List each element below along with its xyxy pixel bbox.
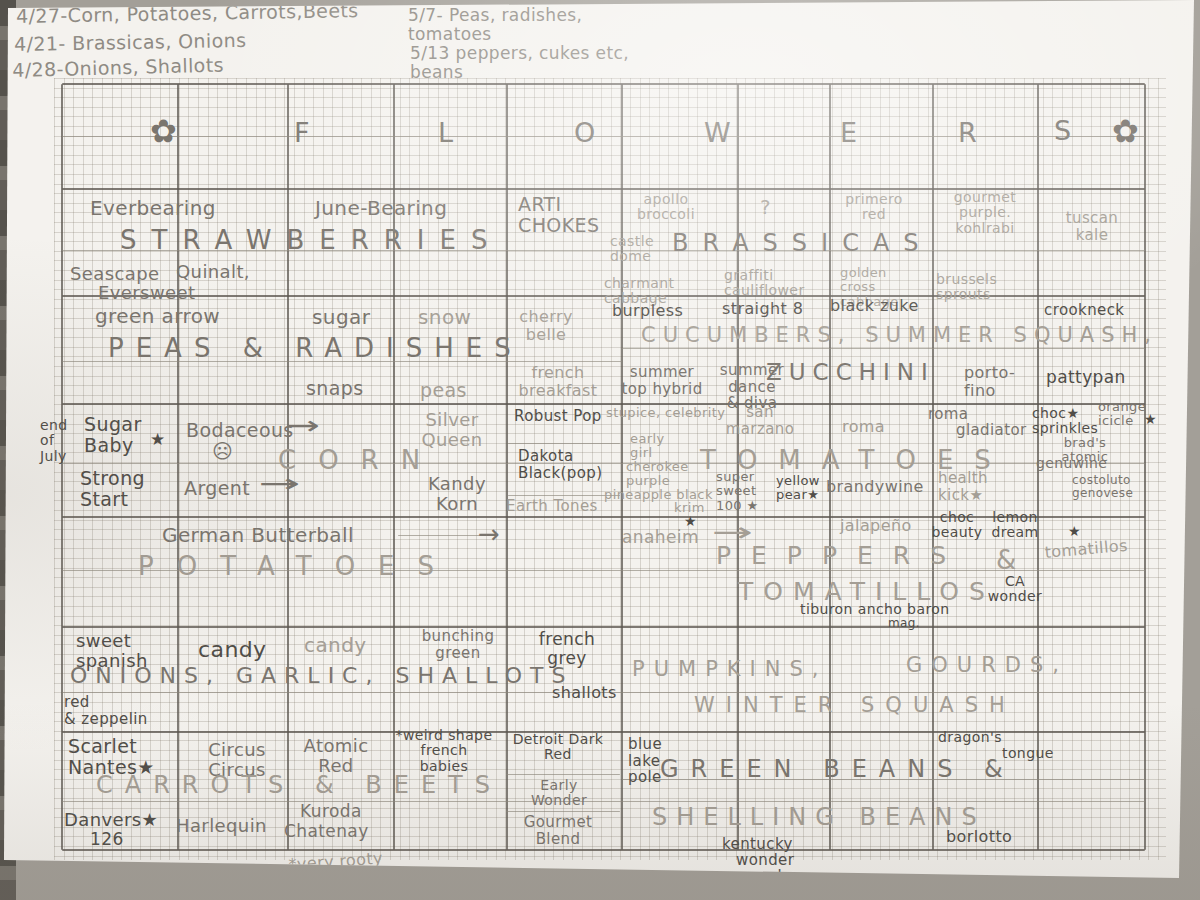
flowers-letter-o: O <box>574 118 596 148</box>
note-4-21: 4/21- Brassicas, Onions <box>14 30 247 55</box>
peas-snaps: snaps <box>306 378 364 399</box>
corn-kandy-korn: Kandy Korn <box>424 474 490 514</box>
tomatoes-stupice-celebrity: stupice, celebrity <box>606 406 725 420</box>
cell-divider-line <box>506 774 620 775</box>
table-row-line <box>62 626 1145 628</box>
radishes-cherry-belle: cherry belle <box>514 308 578 343</box>
tomatoes-genuwine: genuwine <box>1036 456 1107 471</box>
cucumbers-straight-8: straight 8 <box>722 300 803 318</box>
brassicas-brussels-sprouts: brussels sprouts <box>936 272 997 303</box>
beans-borlotto: borlotto <box>946 828 1012 846</box>
beets-detroit-dark-red: Detroit Dark Red <box>502 732 614 763</box>
corn-earth-tones: Earth Tones <box>506 498 598 515</box>
margin-end-of-july: end of July <box>40 418 68 464</box>
brassicas-question-mark: ? <box>760 196 771 218</box>
peppers-ca-wonder: CA wonder <box>984 574 1046 605</box>
tomatoes-choc-sprinkles: choc★ sprinkles <box>1032 406 1098 437</box>
strawberries-quinalt: Quinalt, <box>176 262 250 282</box>
flowers-letter-s: S <box>1054 116 1072 146</box>
tomatoes-costoluto: costoluto genovese <box>1072 474 1133 500</box>
onions-bunching-green: bunching green <box>410 628 506 661</box>
corn-bodaceous-arrow: → <box>286 412 320 440</box>
table-row-line <box>62 83 1145 85</box>
corn-dakota-black: Dakota Black(pop) <box>518 448 603 481</box>
peppers-anaheim: anaheim <box>622 528 699 547</box>
onions-title: ONIONS, GARLIC, SHALLOTS <box>70 664 573 688</box>
tomatoes-brandywine: brandywine <box>826 478 924 496</box>
peas-radishes-title: PEAS & RADISHES <box>108 334 523 363</box>
squash-pattypan: pattypan <box>1046 368 1126 387</box>
peas-green-arrow: green arrow <box>95 305 220 327</box>
winter-squash-title: WINTER SQUASH <box>694 694 1016 717</box>
shallots-french-grey: french grey <box>524 630 610 667</box>
tomatoes-yellow-pear: yellow pear★ <box>776 474 820 503</box>
flowers-letter-r: R <box>958 118 977 148</box>
corn-argent-arrow: → <box>258 470 301 498</box>
peppers-ampersand: & <box>996 546 1017 575</box>
flower-doodle-right: ✿ <box>1112 114 1139 149</box>
strawberries-june-bearing: June-Bearing <box>315 197 447 219</box>
carrots-atomic-red: Atomic Red <box>296 736 376 776</box>
carrots-french-babies: *weird shape french babies <box>386 728 502 774</box>
onions-candy-2: candy <box>304 634 366 656</box>
tomatoes-early-girl: early girl <box>630 432 665 461</box>
note-5-13: 5/13 peppers, cukes etc, beans <box>410 44 629 81</box>
squash-crookneck: crookneck <box>1044 302 1124 319</box>
brassicas-apollo-broccoli: apollo broccoli <box>630 192 702 223</box>
peas-peas: peas <box>420 380 467 401</box>
peas-sugar: sugar <box>312 306 370 328</box>
note-4-27: 4/27-Corn, Potatoes, Carrots,Beets <box>16 0 359 27</box>
tomatoes-health-kick: health kick★ <box>938 470 988 503</box>
note-5-7: 5/7- Peas, radishes, tomatoes <box>408 6 582 43</box>
corn-sad-face-doodle: ☹ <box>212 440 233 462</box>
shallots-small: shallots <box>552 684 617 702</box>
corn-robust-pop: Robust Pop <box>514 408 602 425</box>
onions-candy: candy <box>198 638 267 662</box>
carrots-chatenay: Chatenay <box>284 822 369 841</box>
flowers-letter-w: W <box>704 118 731 148</box>
table-column-line <box>1144 84 1146 850</box>
strawberries-title: STRAWBERRIES <box>120 226 502 255</box>
carrots-kuroda: Kuroda <box>300 802 362 821</box>
beets-early-wonder: Early Wonder <box>512 778 606 809</box>
section-mid-line <box>622 348 1145 349</box>
gourds-title: GOURDS, <box>906 654 1068 677</box>
peppers-choc-beauty: choc beauty <box>930 510 984 541</box>
peppers-mag: mag. <box>888 617 920 630</box>
flowers-letter-e: E <box>840 118 857 148</box>
radishes-french-breakfast: french breakfast <box>508 364 608 399</box>
carrots-very-rooty: *very rooty <box>288 849 383 873</box>
beans-dragons: dragon's <box>938 730 1002 745</box>
brassicas-castle-dome: castle dome <box>610 234 654 265</box>
brassicas-graffiti-cauliflower: graffiti cauliflower <box>724 268 805 299</box>
beets-gourmet-blend: Gourmet Blend <box>508 814 608 847</box>
tomatoes-orange-icicle: orange icicle <box>1098 400 1146 429</box>
onions-red-zeppelin: red & zeppelin <box>64 694 148 727</box>
tomatoes-gladiator: gladiator <box>956 422 1027 439</box>
brassicas-primero-red: primero red <box>838 192 910 223</box>
artichokes-label: ARTI CHOKES <box>518 194 599 236</box>
corn-silver-queen: Silver Queen <box>416 410 488 450</box>
corn-title: CORN <box>278 446 442 475</box>
strawberries-seascape: Seascape <box>70 264 160 284</box>
cucumbers-squash-title: CUCUMBERS, SUMMER SQUASH, <box>641 324 1158 347</box>
peppers-tiburon: tiburon ancho baron <box>800 602 949 617</box>
potatoes-german-butterball: German Butterball <box>162 524 354 546</box>
flowers-letter-l: L <box>438 118 453 148</box>
peppers-title: PEPPERS <box>716 542 966 570</box>
cell-divider-line <box>506 811 620 812</box>
carrots-danvers-126: 126 <box>90 830 124 849</box>
note-4-28: 4/28-Onions, Shallots <box>12 54 224 80</box>
peas-snow: snow <box>418 306 471 328</box>
peppers-jalapeno: jalapeño <box>840 517 912 535</box>
beans-pole: pole <box>758 868 792 885</box>
paper: 4/27-Corn, Potatoes, Carrots,Beets4/21- … <box>0 0 1200 900</box>
carrots-danvers: Danvers★ <box>64 810 158 830</box>
tomatoes-super-sweet-100: super sweet 100 ★ <box>716 470 759 513</box>
photo-background: 4/27-Corn, Potatoes, Carrots,Beets4/21- … <box>0 0 1200 900</box>
flower-doodle-left: ✿ <box>150 114 177 149</box>
cell-divider-line <box>508 443 620 444</box>
brassicas-title: BRASSICAS <box>672 230 933 256</box>
corn-sugar-baby-star: ★ <box>150 430 166 449</box>
peppers-lemon-dream: lemon dream <box>988 510 1042 541</box>
tomatillos-star: ★ <box>1068 524 1081 539</box>
tomatoes-cherokee-purple: cherokee purple <box>626 460 689 489</box>
tomatoes-roma: roma <box>842 418 885 436</box>
brassicas-tuscan-kale: tuscan kale <box>1056 210 1128 243</box>
flowers-letter-f: F <box>294 118 310 148</box>
table-row-line <box>62 403 1145 405</box>
table-row-line <box>62 849 1145 851</box>
zucchini-title: ZUCCHINI <box>766 360 935 385</box>
corn-argent: Argent <box>184 478 250 499</box>
strawberries-eversweet: Eversweet <box>98 283 195 303</box>
beans-tongue: tongue <box>1002 746 1054 761</box>
brassicas-gourmet-kohlrabi: gourmet purple. kohlrabi <box>944 190 1026 236</box>
potatoes-arrow: → <box>478 520 500 549</box>
green-beans-title: GREEN BEANS & <box>660 756 1015 782</box>
corn-sugar-baby: Sugar Baby <box>84 414 142 456</box>
corn-strong-start: Strong Start <box>80 468 145 510</box>
potatoes-title: POTATOES <box>138 552 457 581</box>
cucumbers-summer-top: summer top hybrid <box>616 364 708 397</box>
corn-bodaceous: Bodaceous <box>186 420 294 441</box>
section-mid-line <box>62 136 1145 137</box>
tomatoes-orange-icicle-star: ★ <box>1144 412 1157 427</box>
table-column-line <box>61 84 63 850</box>
carrots-beets-title: CARROTS & BEETS <box>96 772 502 798</box>
squash-black-zuke: black zuke <box>830 297 919 315</box>
pumpkins-title: PUMPKINS, <box>632 658 828 681</box>
shelling-beans-title: SHELLING BEANS <box>652 804 986 830</box>
beans-blue-lake-pole: blue lake pole <box>628 736 662 786</box>
table-column-line <box>621 84 623 850</box>
tomatoes-san-marzano: san marzano <box>724 404 796 437</box>
strawberries-everbearing: Everbearing <box>90 197 216 219</box>
cucumbers-burpless: burpless <box>612 302 683 320</box>
peppers-anaheim-star: ★ <box>684 514 697 529</box>
carrots-harlequin: Harlequin <box>176 816 267 836</box>
zucchini-portofino: porto- fino <box>964 364 1015 399</box>
